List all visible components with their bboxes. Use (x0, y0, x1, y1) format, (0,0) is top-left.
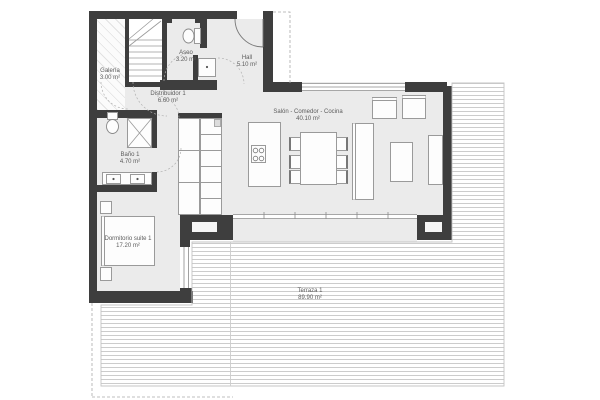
chair (336, 155, 348, 169)
nightstand (100, 201, 112, 214)
wall-vanity-bottom (97, 185, 152, 192)
room-label-dormitorio: Dormitorio suite 117.20 m² (104, 236, 151, 250)
armchair (372, 97, 397, 119)
wall-bano-right-lower (152, 172, 157, 192)
room-label-distribuidor: Distribuidor 16.60 m² (150, 91, 185, 105)
wall-aseo-bottom (160, 80, 217, 90)
stairs-area (129, 19, 162, 82)
chair (336, 137, 348, 151)
room-label-galeria: Galería3.00 m² (100, 68, 120, 82)
shower-tray (127, 118, 152, 148)
living-room-window (302, 83, 405, 91)
chair (289, 155, 301, 169)
floor-threshold (233, 219, 417, 242)
vanity-sink-left (106, 174, 121, 184)
wall-bano-right-upper (152, 118, 157, 148)
wall-bedroom-right-top (180, 240, 190, 247)
tv-sideboard (428, 135, 443, 185)
wall-stair-right (162, 19, 167, 83)
wall-pillar-a (162, 11, 172, 23)
kitchen-appliance (214, 119, 221, 127)
kitchen-tall-units (200, 118, 222, 215)
bedroom-glass-door (183, 247, 190, 288)
aseo-toilet-cistern (194, 28, 201, 44)
room-label-salon: Salón - Comedor - Cocina40.10 m² (273, 109, 342, 123)
wall-hall-right (263, 19, 273, 82)
galeria-floor (97, 19, 125, 110)
floor-plan: Galería3.00 m² Aseo3.20 m² Hall5.10 m² D… (0, 0, 600, 400)
entrance-opening (237, 11, 263, 19)
pillar-left-notch (192, 222, 217, 232)
aseo-washbasin (198, 58, 216, 77)
chair (289, 137, 301, 151)
sliding-glass-door (233, 214, 417, 219)
wall-aseo-partition (200, 19, 207, 48)
wall-left (89, 11, 97, 303)
wall-bedroom-bottom (89, 291, 193, 303)
nightstand (100, 267, 112, 281)
armchair (402, 95, 426, 119)
room-label-bano: Baño 14.70 m² (120, 152, 140, 166)
room-label-aseo: Aseo3.20 m² (176, 50, 196, 64)
room-label-terraza: Terraza 189.90 m² (297, 288, 322, 302)
wall-livingroom-top-right (405, 82, 447, 92)
room-label-hall: Hall5.10 m² (237, 55, 257, 69)
sofa (352, 123, 374, 200)
roof-overhang-dashed (273, 12, 290, 83)
vanity-sink-right (130, 174, 145, 184)
wall-stair-left (125, 19, 129, 82)
chair (289, 170, 301, 184)
pillar-right-notch (425, 222, 442, 232)
wall-bano-top (93, 110, 157, 118)
wardrobe-column-left (178, 118, 200, 215)
coffee-table (390, 142, 413, 182)
dining-table (300, 132, 337, 185)
chair (336, 170, 348, 184)
cooktop (251, 145, 266, 163)
bano-toilet-cistern (107, 112, 118, 120)
wall-livingroom-top-left (263, 82, 302, 92)
